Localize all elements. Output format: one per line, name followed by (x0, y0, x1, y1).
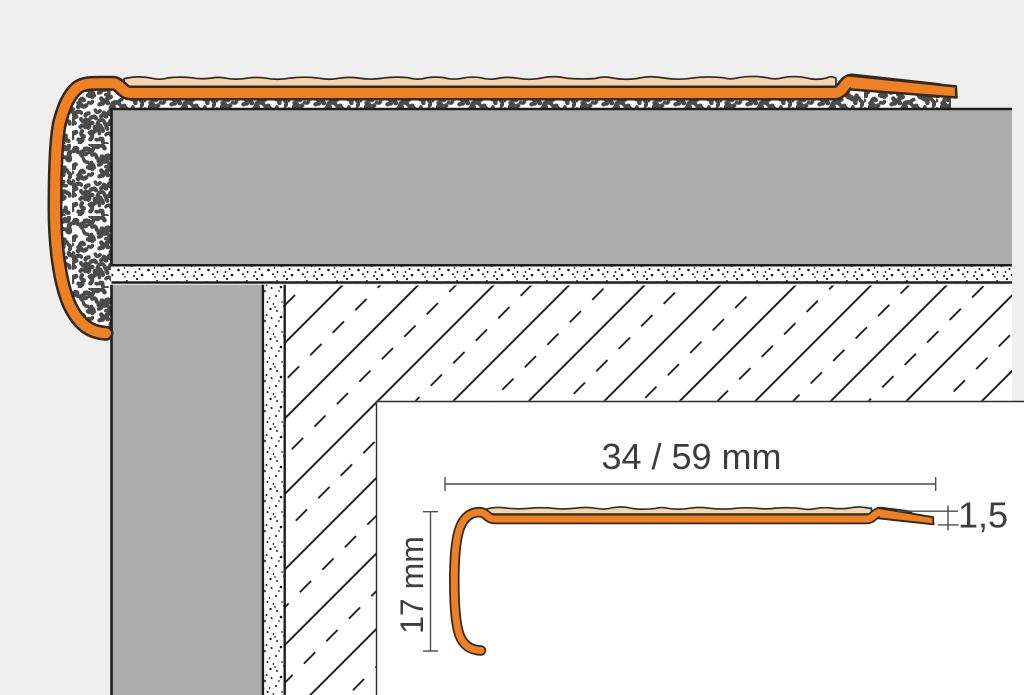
svg-text:1,5: 1,5 (958, 495, 1008, 536)
svg-text:17 mm: 17 mm (394, 536, 430, 634)
svg-text:34 / 59 mm: 34 / 59 mm (601, 436, 781, 477)
